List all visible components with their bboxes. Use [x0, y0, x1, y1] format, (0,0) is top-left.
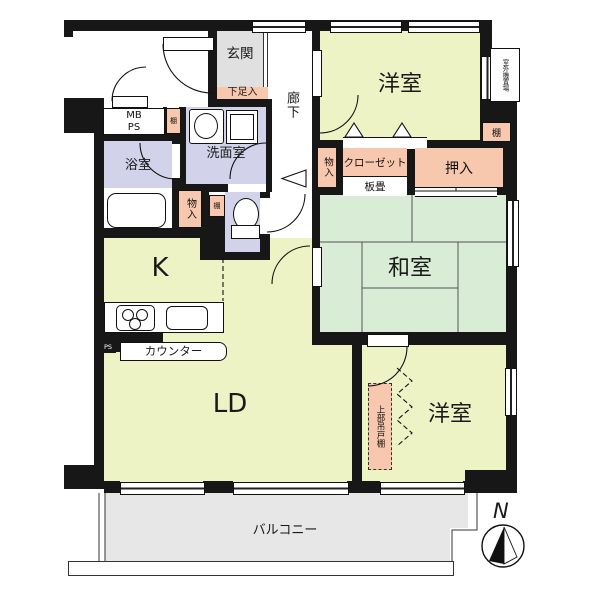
- washing-machine-pan: [226, 110, 258, 144]
- wall: [203, 481, 233, 493]
- fusuma-track: [415, 187, 497, 197]
- wall: [215, 252, 270, 260]
- sink: [166, 306, 208, 330]
- window: [380, 482, 465, 495]
- closet: クローゼット: [343, 148, 407, 176]
- ld-label: LD: [185, 389, 275, 419]
- ps-label: PS: [128, 122, 140, 134]
- counter-band: カウンター: [120, 342, 227, 361]
- toilet-tank: [231, 225, 260, 239]
- western-room-top-label: 洋室: [320, 66, 480, 98]
- genkan-step-line: [267, 31, 268, 87]
- shelf-right: 棚: [482, 122, 511, 142]
- genkan-label: 玄関: [217, 42, 263, 62]
- shelf-toilet: 棚: [209, 195, 225, 217]
- entry-door-arc: [163, 44, 212, 93]
- window: [252, 21, 306, 33]
- hanging-cupboard: 上部吊戸棚: [368, 383, 392, 470]
- itajiki: 板畳: [343, 176, 407, 196]
- door-gap: [260, 198, 270, 234]
- wall: [64, 465, 104, 489]
- window: [408, 21, 480, 33]
- wall: [208, 99, 272, 107]
- getabako: 下足入: [217, 87, 268, 99]
- wall: [497, 187, 506, 195]
- door-leaf: [312, 247, 322, 287]
- wall: [64, 98, 104, 133]
- window: [507, 200, 519, 267]
- shelf-left: 棚: [166, 108, 181, 134]
- bathroom-label: 浴室: [106, 154, 170, 173]
- oshiire: 押入: [415, 148, 503, 187]
- door-leaf: [367, 334, 409, 347]
- window: [330, 21, 402, 33]
- wall: [266, 184, 272, 192]
- wall: [352, 340, 362, 483]
- senmenshitsu-label: 洗面室: [186, 142, 266, 161]
- wall: [94, 228, 208, 238]
- genkan-step-line: [263, 31, 264, 87]
- window: [233, 482, 349, 495]
- hallway-label: 廊下: [282, 91, 301, 119]
- ps-badge: PS: [100, 341, 116, 353]
- kitchen-label: K: [138, 253, 182, 283]
- balcony-rail: [68, 561, 454, 576]
- wall: [312, 332, 517, 345]
- monoire-center: 物入: [318, 148, 336, 187]
- mb-label: MB: [126, 110, 142, 122]
- wall: [312, 187, 343, 195]
- balcony-label: バルコニー: [200, 519, 370, 538]
- floor-plan: 下足入 棚 棚 棚 物入 物入 クローゼット 押入 板畳 上部吊戸棚 MB PS…: [0, 0, 600, 600]
- wall: [347, 481, 380, 493]
- western-room-bottom-label: 洋室: [390, 396, 510, 428]
- wall: [94, 133, 104, 465]
- bathtub: [107, 193, 166, 228]
- wall: [104, 481, 120, 493]
- outdoor-unit-space: 室外機置場: [490, 48, 520, 102]
- door-gap: [172, 144, 180, 178]
- compass-icon: [482, 525, 524, 567]
- compass-n-label: N: [493, 499, 509, 523]
- entry-door-leaf: [163, 37, 214, 51]
- stove: [116, 305, 155, 331]
- meter-box: MB PS: [103, 108, 165, 135]
- monoire-west: 物入: [178, 190, 202, 228]
- window: [120, 482, 205, 495]
- hallway-area: [272, 31, 312, 245]
- washitsu-label: 和室: [362, 250, 458, 282]
- wall: [64, 20, 73, 37]
- washbasin: [189, 109, 224, 144]
- wall: [266, 107, 272, 184]
- meter-door-leaf: [112, 96, 148, 108]
- wall: [506, 140, 517, 493]
